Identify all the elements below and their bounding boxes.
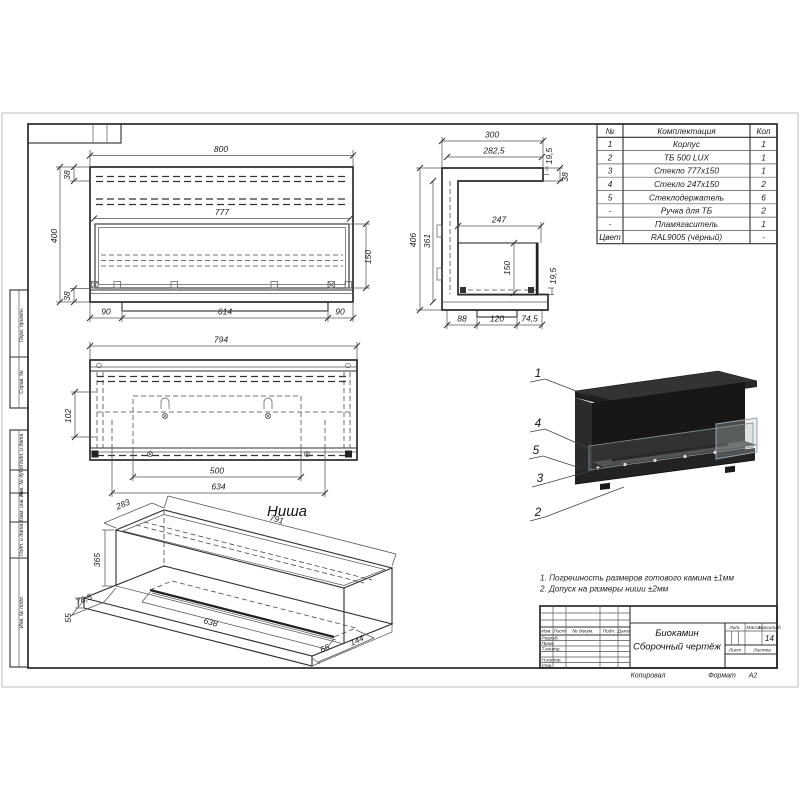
- note-line-2: 2. Допуск на размеры ниши ±2мм: [539, 585, 669, 594]
- callout-4: 4: [535, 418, 541, 430]
- dim-side-top-thickness: 38: [560, 172, 570, 182]
- dim-side-glass-height: 150: [502, 261, 512, 275]
- tb-doc-name: Биокамин: [655, 628, 699, 639]
- svg-text:1: 1: [761, 219, 766, 229]
- tb-col-data: Дата: [617, 629, 631, 635]
- svg-text:Стекло 777х150: Стекло 777х150: [654, 166, 719, 176]
- tb-scale-label: Масштаб: [758, 625, 781, 631]
- svg-text:Корпус: Корпус: [673, 139, 701, 149]
- tb-col-list: Лист: [552, 629, 565, 635]
- dim-front-bottom-inset: 38: [62, 291, 72, 301]
- tb-row-nkontr: Н.контр.: [542, 658, 562, 664]
- tb-format-value: А2: [748, 673, 758, 680]
- dim-front-base-width: 614: [218, 307, 232, 317]
- dim-side-depth: 300: [485, 130, 499, 140]
- dim-side-seg3: 74,5: [521, 314, 538, 324]
- dim-side-bottom-gap: 19,5: [548, 267, 558, 284]
- dim-side-height: 406: [408, 233, 418, 247]
- svg-text:6: 6: [761, 192, 766, 202]
- parts-header-qty: Кол: [756, 126, 770, 136]
- svg-text:-: -: [762, 232, 765, 242]
- callout-3: 3: [537, 473, 544, 485]
- svg-text:5: 5: [608, 192, 613, 202]
- dim-front-opening-width: 777: [215, 207, 229, 217]
- svg-text:Ручка для ТБ: Ручка для ТБ: [661, 206, 713, 216]
- dim-side-inner-height: 361: [422, 234, 432, 248]
- dim-side-seg2: 120: [490, 314, 504, 324]
- dim-front-top-inset: 38: [62, 170, 72, 180]
- tb-copied: Копировал: [631, 673, 666, 680]
- dim-niche-bracket-offset: 102: [63, 409, 73, 423]
- tb-row-tkontr: Т.контр.: [542, 647, 561, 653]
- margin-label-podp-data-2: Подп. и дата: [19, 524, 25, 557]
- callout-5: 5: [533, 445, 540, 457]
- tb-col-dokum: № докум.: [572, 629, 593, 635]
- svg-text:2: 2: [607, 152, 613, 162]
- dim-front-height: 400: [49, 229, 59, 243]
- svg-text:RAL9005 (чёрный): RAL9005 (чёрный): [651, 232, 722, 242]
- svg-text:1: 1: [761, 139, 766, 149]
- tb-col-izm: Изм.: [541, 629, 551, 635]
- tb-sheet-label: Лист: [728, 648, 741, 654]
- svg-text:Стекло 247х150: Стекло 247х150: [654, 179, 719, 189]
- dim-iso-base: 55: [63, 613, 73, 623]
- dim-side-top-gap: 19,5: [544, 147, 554, 164]
- callout-2: 2: [534, 507, 542, 519]
- svg-text:3: 3: [608, 166, 613, 176]
- tb-sheets-label: Листов: [752, 648, 771, 654]
- svg-text:Стеклодержатель: Стеклодержатель: [649, 192, 724, 202]
- margin-label-podp-data-1: Подп. и дата: [19, 434, 25, 467]
- tb-col-podp: Подп.: [603, 629, 616, 635]
- parts-header-num: №: [606, 126, 615, 136]
- dim-front-glass-height: 150: [363, 250, 373, 264]
- svg-text:4: 4: [608, 179, 613, 189]
- dim-niche-width: 794: [214, 335, 228, 345]
- note-line-1: 1. Погрешность размеров готового камина …: [540, 574, 734, 583]
- svg-text:ТБ 500 LUX: ТБ 500 LUX: [664, 152, 710, 162]
- svg-text:1: 1: [608, 139, 613, 149]
- tb-row-prov: Пров.: [542, 641, 555, 647]
- margin-label-sprav: Справ. №: [19, 370, 25, 394]
- svg-text:-: -: [609, 206, 612, 216]
- svg-text:2: 2: [760, 179, 766, 189]
- callout-1: 1: [535, 368, 541, 380]
- tb-scale-value: 14: [765, 634, 774, 643]
- dim-side-glass-width: 247: [491, 215, 506, 225]
- tb-format-label: Формат: [708, 673, 736, 680]
- svg-text:-: -: [609, 219, 612, 229]
- drawing-sheet: Перв. примен. Справ. № Подп. и дата Инв.…: [0, 0, 800, 800]
- dim-front-right-margin: 90: [335, 307, 345, 317]
- tb-row-utv: Утв.: [542, 663, 553, 669]
- dim-front-left-margin: 90: [101, 307, 111, 317]
- svg-text:Цвет: Цвет: [599, 232, 621, 242]
- tb-doc-type: Сборочный чертёж: [633, 642, 721, 653]
- tb-lit-label: Лит.: [728, 625, 740, 631]
- svg-text:Пламягаситель: Пламягаситель: [655, 219, 718, 229]
- parts-header-name: Комплектация: [657, 126, 716, 136]
- dim-niche-slot-outer: 634: [211, 482, 225, 492]
- assembly-drawing: Перв. примен. Справ. № Подп. и дата Инв.…: [0, 0, 800, 800]
- margin-label-perv-primen: Перв. примен.: [19, 308, 25, 342]
- margin-label-inv-podl: Инв. № подл.: [19, 596, 25, 628]
- tb-row-razrab: Разраб.: [542, 636, 559, 642]
- dim-niche-slot-width: 500: [210, 466, 224, 476]
- svg-text:1: 1: [761, 166, 766, 176]
- svg-text:2: 2: [760, 206, 766, 216]
- margin-label-vzam-inv: Взам. инв. №: [19, 491, 25, 523]
- dim-side-inner-depth: 282,5: [482, 146, 505, 156]
- dim-front-width: 800: [214, 144, 228, 154]
- dim-side-seg1: 88: [457, 314, 467, 324]
- svg-text:1: 1: [761, 152, 766, 162]
- dim-iso-height: 365: [92, 553, 102, 567]
